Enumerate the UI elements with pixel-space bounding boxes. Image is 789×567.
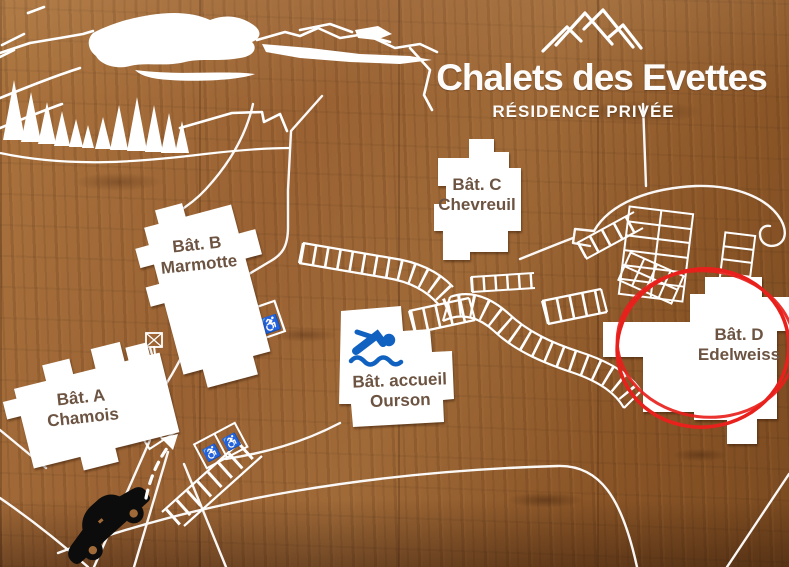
sign-title-block: Chalets des Evettes RÉSIDENCE PRIVÉE — [414, 57, 789, 122]
accessible-parking-entrance: ♿ ♿ — [194, 423, 247, 468]
mountain-peaks-logo-icon — [543, 10, 641, 51]
building-b-label: Bât. B Marmotte — [158, 231, 238, 279]
building-c-sublabel: Chevreuil — [438, 195, 515, 215]
building-a-label: Bât. A Chamois — [44, 384, 120, 431]
building-d-label: Bât. D Edelweiss — [698, 325, 780, 365]
snow-patches — [89, 13, 432, 81]
pine-trees — [3, 80, 189, 153]
building-accueil-name: Bât. accueil — [352, 369, 447, 392]
building-d-sublabel: Edelweiss — [698, 345, 780, 365]
car-icon — [53, 472, 159, 567]
building-accueil-label: Bât. accueil Ourson — [352, 369, 448, 412]
resort-subtitle: RÉSIDENCE PRIVÉE — [396, 102, 771, 122]
building-d-name: Bât. D — [698, 325, 780, 345]
building-c-label: Bât. C Chevreuil — [438, 175, 515, 215]
building-c-name: Bât. C — [438, 175, 515, 195]
wooden-map-sign: ♿ ♿ ♿ ♿ ♿ ♿ — [0, 0, 789, 567]
resort-title: Chalets des Evettes — [414, 57, 789, 99]
building-accueil-sublabel: Ourson — [353, 389, 448, 412]
wheelchair-icon: ♿ — [221, 432, 242, 453]
direction-arrow — [146, 434, 178, 498]
